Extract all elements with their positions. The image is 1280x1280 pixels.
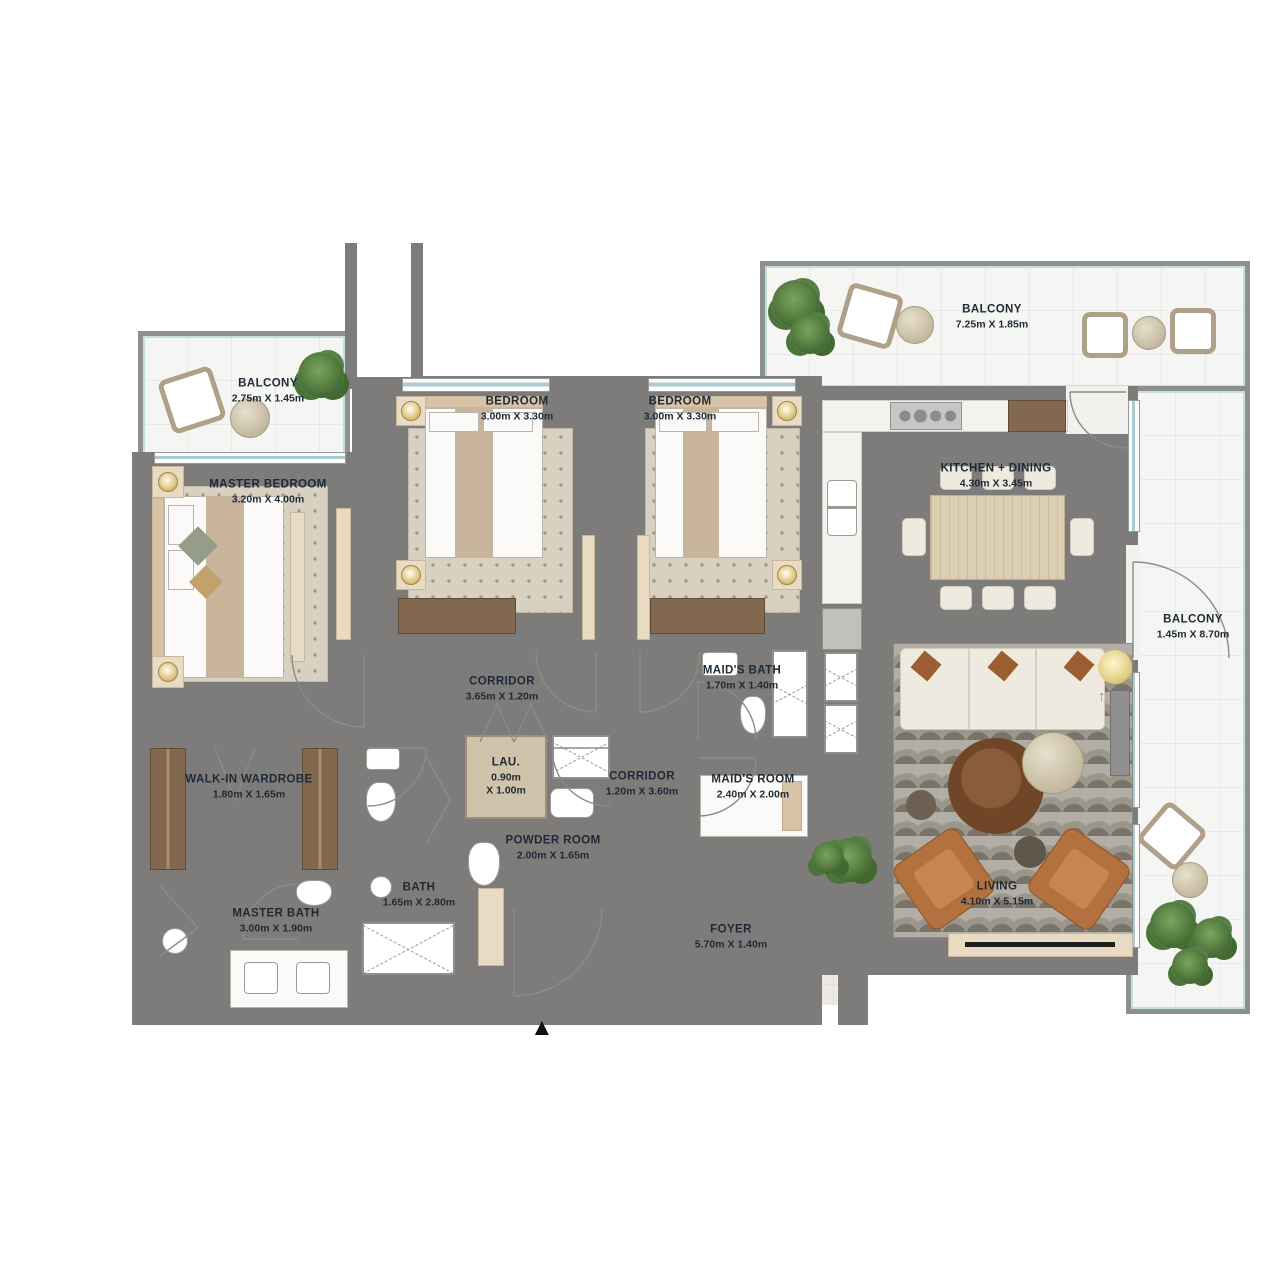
room-name: BEDROOM [644, 395, 716, 409]
entry-arrow-icon: ▲ [530, 1014, 554, 1042]
label-laundry: LAU. 0.90m X 1.00m [486, 757, 526, 798]
shaft-void [357, 243, 411, 377]
dining-chair-6 [1024, 586, 1056, 610]
label-foyer: FOYER 5.70m X 1.40m [695, 923, 767, 950]
balcony-right-plant-3 [1172, 948, 1208, 984]
room-name: MASTER BEDROOM [209, 478, 326, 492]
wardrobe-right [302, 748, 338, 870]
room-name: BALCONY [1157, 613, 1229, 627]
label-bath: BATH 1.65m X 2.80m [383, 881, 455, 908]
bedroom1-pillow-1 [429, 412, 479, 432]
direction-arrow-left-icon: ← [252, 466, 267, 483]
label-bedroom-1: BEDROOM 3.00m X 3.30m [481, 395, 553, 422]
label-master-bath: MASTER BATH 3.00m X 1.90m [232, 907, 319, 934]
bedroom1-lamp-2 [401, 565, 421, 585]
room-name: MAID'S BATH [703, 664, 781, 678]
label-corridor-1: CORRIDOR 3.65m X 1.20m [466, 675, 538, 702]
room-dims: 4.30m X 3.45m [941, 477, 1052, 490]
bedroom2-dresser [650, 598, 765, 634]
master-bath-sink-1 [244, 962, 278, 994]
room-dims: 2.75m X 1.45m [232, 392, 304, 405]
balcony-top-chair-3 [1170, 308, 1216, 354]
maids-bath-shower [772, 650, 808, 738]
master-bath-light [162, 928, 188, 954]
dining-chair-7 [902, 518, 926, 556]
master-lamp-2 [158, 662, 178, 682]
room-name: BALCONY [956, 303, 1028, 317]
floor-lamp [1098, 650, 1132, 684]
master-bedroom-window [154, 452, 346, 464]
room-name: CORRIDOR [466, 675, 538, 689]
label-corridor-2: CORRIDOR 1.20m X 3.60m [606, 770, 678, 797]
balcony-top-plant-2 [790, 314, 830, 354]
room-name: BATH [383, 881, 455, 895]
dining-chair-8 [1070, 518, 1094, 556]
linen-closet [552, 735, 610, 779]
powder-sink [550, 788, 594, 818]
balcony-right-plant-1 [1150, 902, 1196, 948]
balcony-top-table-2 [1132, 316, 1166, 350]
room-dims: 3.65m X 1.20m [466, 690, 538, 703]
room-dims: X 1.00m [486, 785, 526, 798]
room-dims: 1.70m X 1.40m [703, 679, 781, 692]
room-name: BALCONY [232, 377, 304, 391]
bedroom2-lamp-1 [777, 401, 797, 421]
bedroom1-lamp-1 [401, 401, 421, 421]
powder-toilet [468, 842, 500, 886]
label-master-bedroom: MASTER BEDROOM 3.20m X 4.00m [209, 478, 326, 505]
maids-room-plant [812, 842, 844, 874]
bath-toilet [366, 782, 396, 822]
room-dims: 0.90m [486, 771, 526, 784]
room-dims: 2.00m X 1.65m [505, 849, 600, 862]
label-walk-in-wardrobe: WALK-IN WARDROBE 1.80m X 1.65m [185, 773, 312, 800]
room-dims: 2.40m X 2.00m [711, 788, 794, 801]
label-living: LIVING 4.10m X 5.15m [961, 880, 1033, 907]
ottoman-1 [906, 790, 936, 820]
foyer-console [478, 888, 504, 966]
balcony-tl-plant [298, 352, 344, 398]
bedroom1-dresser [398, 598, 516, 634]
room-dims: 1.20m X 3.60m [606, 785, 678, 798]
master-lamp-1 [158, 472, 178, 492]
bath-sink [366, 748, 400, 770]
dining-chair-5 [982, 586, 1014, 610]
room-dims: 3.00m X 1.90m [232, 922, 319, 935]
living-tv [965, 942, 1115, 947]
wall-foyer-connector [838, 970, 868, 1025]
direction-arrow-down-icon: ↓ [1114, 760, 1122, 777]
room-name: LAU. [486, 757, 526, 771]
bedroom2-tv-console [637, 535, 650, 640]
label-balcony-top: BALCONY 7.25m X 1.85m [956, 303, 1028, 330]
bedroom2-pillow-2 [711, 412, 759, 432]
dining-chair-4 [940, 586, 972, 610]
kitchen-tall-cabinet [1008, 400, 1066, 432]
maids-bath-toilet [740, 696, 766, 734]
label-maids-room: MAID'S ROOM 2.40m X 2.00m [711, 773, 794, 800]
label-kitchen-dining: KITCHEN + DINING 4.30m X 3.45m [941, 462, 1052, 489]
label-powder-room: POWDER ROOM 2.00m X 1.65m [505, 834, 600, 861]
direction-arrow-up-icon: ↑ [1098, 688, 1106, 705]
bedroom1-tv-console [582, 535, 595, 640]
room-name: KITCHEN + DINING [941, 462, 1052, 476]
label-bedroom-2: BEDROOM 3.00m X 3.30m [644, 395, 716, 422]
room-dims: 3.00m X 3.30m [481, 410, 553, 423]
room-dims: 5.70m X 1.40m [695, 938, 767, 951]
bedroom2-lamp-2 [777, 565, 797, 585]
room-name: MAID'S ROOM [711, 773, 794, 787]
room-dims: 3.20m X 4.00m [209, 493, 326, 506]
room-dims: 3.00m X 3.30m [644, 410, 716, 423]
room-name: LIVING [961, 880, 1033, 894]
dining-table [930, 495, 1065, 580]
wardrobe-left [150, 748, 186, 870]
room-name: MASTER BATH [232, 907, 319, 921]
balcony-top-chair-2 [1082, 312, 1128, 358]
balcony-right-table [1172, 862, 1208, 898]
master-bath-sink-2 [296, 962, 330, 994]
fridge [822, 608, 862, 650]
kitchen-hob [890, 402, 962, 430]
room-name: FOYER [695, 923, 767, 937]
floor-plan-page: { "plan": { "rooms": { "balcony_top_left… [0, 0, 1280, 1280]
kitchen-closet-1 [824, 652, 858, 702]
room-name: BEDROOM [481, 395, 553, 409]
kitchen-sink [827, 480, 857, 536]
bedroom2-window [648, 378, 796, 392]
kitchen-balcony-door-gap [1066, 386, 1128, 434]
master-bench [290, 512, 305, 662]
room-dims: 4.10m X 5.15m [961, 895, 1033, 908]
room-dims: 1.65m X 2.80m [383, 896, 455, 909]
room-name: POWDER ROOM [505, 834, 600, 848]
room-name: WALK-IN WARDROBE [185, 773, 312, 787]
master-bath-toilet [296, 880, 332, 906]
label-balcony-top-left: BALCONY 2.75m X 1.45m [232, 377, 304, 404]
room-dims: 1.80m X 1.65m [185, 788, 312, 801]
label-balcony-right: BALCONY 1.45m X 8.70m [1157, 613, 1229, 640]
bedroom1-window [402, 378, 550, 392]
master-tv-console [336, 508, 351, 640]
foyer-closet [362, 922, 455, 975]
room-name: CORRIDOR [606, 770, 678, 784]
master-headboard [152, 498, 164, 678]
label-maids-bath: MAID'S BATH 1.70m X 1.40m [703, 664, 781, 691]
room-dims: 7.25m X 1.85m [956, 318, 1028, 331]
coffee-side-table [1022, 732, 1084, 794]
kitchen-closet-2 [824, 704, 858, 754]
balcony-top-table-1 [896, 306, 934, 344]
room-dims: 1.45m X 8.70m [1157, 628, 1229, 641]
living-window-1 [1128, 400, 1140, 532]
